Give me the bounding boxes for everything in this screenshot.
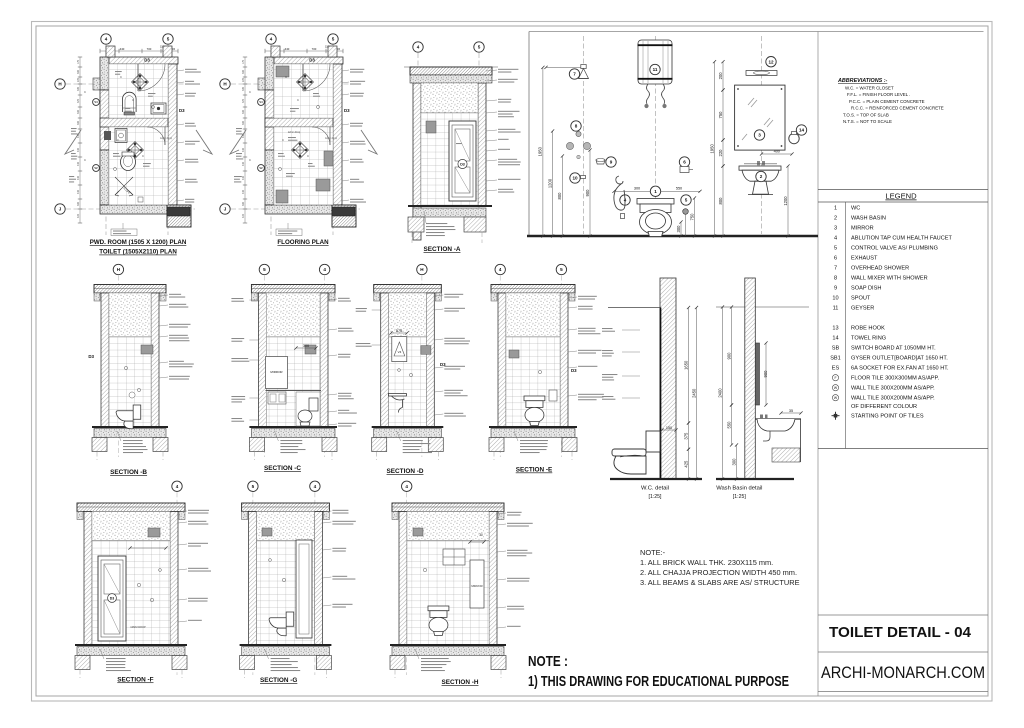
svg-text:C: C [84, 90, 86, 94]
svg-text:300: 300 [303, 344, 309, 348]
svg-text:NOTE:-: NOTE:- [640, 548, 666, 557]
svg-text:550: 550 [676, 187, 682, 191]
svg-text:12mm Drop: 12mm Drop [160, 137, 173, 140]
svg-text:420: 420 [242, 213, 245, 218]
svg-text:175: 175 [77, 59, 80, 64]
svg-text:300: 300 [242, 69, 245, 74]
svg-text:4: 4 [417, 45, 420, 50]
svg-text:300: 300 [77, 69, 80, 74]
svg-text:300: 300 [676, 225, 681, 233]
svg-text:35: 35 [789, 409, 793, 413]
svg-text:430: 430 [77, 175, 80, 180]
svg-text:4: 4 [405, 484, 408, 489]
svg-text:5: 5 [252, 484, 255, 489]
svg-text:9: 9 [610, 160, 613, 165]
svg-text:WC: WC [851, 206, 860, 212]
svg-text:9: 9 [834, 286, 837, 292]
svg-text:440: 440 [120, 47, 125, 51]
svg-text:SWITCH BOARD AT 1050MM HT.: SWITCH BOARD AT 1050MM HT. [851, 346, 936, 352]
svg-text:D3: D3 [440, 362, 446, 367]
svg-text:175: 175 [242, 59, 245, 64]
svg-text:T.O.S. = TOP OF SLAB: T.O.S. = TOP OF SLAB [843, 112, 889, 117]
svg-text:SOAP DISH: SOAP DISH [851, 286, 881, 292]
svg-text:7: 7 [834, 266, 837, 272]
svg-text:5: 5 [478, 45, 481, 50]
svg-text:1: 1 [654, 189, 657, 194]
svg-text:P.C.C. = PLAIN CEMENT CONCRE: P.C.C. = PLAIN CEMENT CONCRETE [849, 99, 925, 104]
svg-text:OF DIFFERENT COLOUR: OF DIFFERENT COLOUR [851, 404, 917, 410]
svg-text:225: 225 [77, 77, 80, 82]
svg-text:1. ALL BRICK WALL THK. 230X115: 1. ALL BRICK WALL THK. 230X115 mm. [640, 558, 773, 567]
svg-text:F: F [834, 376, 836, 380]
svg-text:N.T.S. = NOT TO SCALE: N.T.S. = NOT TO SCALE [843, 119, 892, 124]
svg-text:SECTION -H: SECTION -H [442, 679, 479, 686]
svg-text:D3: D3 [571, 368, 577, 373]
svg-text:SECTION -A: SECTION -A [424, 246, 461, 253]
svg-text:13: 13 [832, 326, 838, 332]
svg-text:900: 900 [726, 352, 731, 360]
svg-text:4: 4 [314, 484, 317, 489]
svg-text:C: C [84, 158, 86, 162]
svg-text:CONTROL VALVE AS/ PLUMBING: CONTROL VALVE AS/ PLUMBING [851, 246, 938, 252]
svg-text:5: 5 [834, 246, 837, 252]
svg-text:C: C [285, 75, 287, 79]
svg-text:420: 420 [77, 213, 80, 218]
svg-text:V2: V2 [94, 166, 98, 170]
svg-text:220: 220 [718, 149, 723, 157]
svg-text:700: 700 [147, 47, 152, 51]
svg-text:TOILET DETAIL - 04: TOILET DETAIL - 04 [829, 624, 972, 641]
svg-text:V4: V4 [94, 100, 98, 104]
svg-text:2400: 2400 [717, 388, 722, 398]
svg-text:800: 800 [718, 197, 723, 205]
svg-text:4: 4 [499, 267, 502, 272]
svg-text:C: C [282, 138, 284, 142]
svg-text:SECTION -F: SECTION -F [117, 676, 153, 683]
svg-text:300: 300 [77, 201, 80, 206]
svg-text:225: 225 [242, 77, 245, 82]
svg-text:ABLUTION TAP CUM HEALTH FAUCET: ABLUTION TAP CUM HEALTH FAUCET [851, 236, 952, 242]
svg-text:900: 900 [763, 370, 768, 378]
svg-text:900: 900 [585, 189, 590, 197]
svg-text:5: 5 [332, 37, 335, 42]
svg-text:330: 330 [242, 109, 245, 114]
svg-text:430: 430 [77, 189, 80, 194]
svg-text:10: 10 [832, 296, 838, 302]
svg-text:4: 4 [176, 484, 179, 489]
svg-text:11: 11 [833, 306, 839, 312]
svg-text:1: 1 [834, 206, 837, 212]
svg-text:12: 12 [768, 59, 774, 64]
svg-text:V4: V4 [398, 350, 402, 354]
svg-text:5: 5 [560, 267, 563, 272]
svg-text:FLOOR TILE 300X300MM AS/APP.: FLOOR TILE 300X300MM AS/APP. [851, 376, 940, 382]
svg-text:FLOORING PLAN: FLOORING PLAN [277, 239, 329, 246]
svg-text:6A SOCKET FOR EX.FAN AT 1650 H: 6A SOCKET FOR EX.FAN AT 1650 HT. [851, 366, 949, 372]
svg-text:SPOUT: SPOUT [851, 296, 871, 302]
svg-text:SB1: SB1 [830, 356, 841, 362]
svg-text:MIRROR: MIRROR [270, 370, 283, 374]
svg-text:NOTE :: NOTE : [528, 653, 568, 670]
svg-text:C: C [249, 158, 251, 162]
svg-text:8: 8 [575, 124, 578, 129]
svg-text:14: 14 [799, 128, 805, 133]
svg-text:4: 4 [105, 37, 108, 42]
svg-text:J: J [59, 207, 62, 212]
svg-text:200: 200 [718, 72, 723, 80]
svg-text:D3: D3 [344, 108, 350, 113]
svg-text:C: C [142, 154, 144, 158]
svg-text:6: 6 [683, 160, 686, 165]
svg-text:11: 11 [653, 67, 658, 72]
svg-text:2. ALL CHAJJA PROJECTION WIDTH: 2. ALL CHAJJA PROJECTION WIDTH 450 mm. [640, 568, 797, 577]
svg-text:OVERHEAD SHOWER: OVERHEAD SHOWER [851, 266, 909, 272]
svg-text:ABBREVIATIONS :-: ABBREVIATIONS :- [837, 78, 888, 84]
svg-text:12mm Drop: 12mm Drop [288, 131, 301, 134]
svg-text:1950: 1950 [538, 146, 543, 156]
svg-text:10MM DROP: 10MM DROP [130, 625, 146, 629]
svg-text:400: 400 [774, 150, 780, 154]
svg-text:GYSER OUTLET[BOARD]AT 1650 HT.: GYSER OUTLET[BOARD]AT 1650 HT. [851, 356, 948, 362]
svg-text:750: 750 [689, 213, 694, 221]
svg-text:SB: SB [832, 346, 840, 352]
svg-text:D3: D3 [179, 108, 185, 113]
svg-text:300: 300 [77, 120, 80, 125]
svg-text:1) THIS DRAWING FOR EDUCATIONA: 1) THIS DRAWING FOR EDUCATIONAL PURPOSE [528, 674, 789, 690]
svg-text:575: 575 [396, 329, 402, 333]
svg-text:SECTION -B: SECTION -B [110, 469, 147, 476]
svg-text:1950: 1950 [709, 144, 714, 154]
svg-text:J: J [224, 207, 227, 212]
svg-text:2450: 2450 [691, 388, 696, 398]
svg-text:3: 3 [834, 226, 837, 232]
svg-text:300: 300 [242, 120, 245, 125]
svg-text:R.C.C. = REINFORCED CEMENT C: R.C.C. = REINFORCED CEMENT CONCRETE [851, 106, 944, 111]
svg-text:D3: D3 [110, 597, 115, 601]
svg-text:430: 430 [242, 189, 245, 194]
svg-text:C: C [117, 138, 119, 142]
svg-text:8: 8 [834, 276, 837, 282]
svg-text:375: 375 [683, 432, 688, 440]
svg-text:440: 440 [285, 47, 290, 51]
svg-text:D3: D3 [309, 58, 315, 63]
svg-text:430: 430 [242, 175, 245, 180]
svg-text:LEGEND: LEGEND [885, 192, 917, 201]
svg-text:2: 2 [760, 174, 763, 179]
svg-text:W.C. detail: W.C. detail [641, 486, 669, 492]
svg-text:4: 4 [270, 37, 273, 42]
svg-text:430: 430 [242, 161, 245, 166]
svg-text:335: 335 [242, 86, 245, 91]
svg-text:5: 5 [263, 267, 266, 272]
svg-text:300: 300 [242, 201, 245, 206]
svg-text:370: 370 [77, 98, 80, 103]
svg-text:14: 14 [832, 336, 838, 342]
svg-text:C: C [132, 98, 134, 102]
svg-text:3. ALL BEAMS & SLABS ARE AS/ S: 3. ALL BEAMS & SLABS ARE AS/ STRUCTURE [640, 578, 800, 587]
svg-text:1200: 1200 [783, 196, 788, 206]
svg-text:4: 4 [323, 267, 326, 272]
svg-text:430: 430 [242, 147, 245, 152]
svg-text:C: C [307, 154, 309, 158]
svg-text:150: 150 [666, 426, 672, 430]
svg-text:STARTING POINT OF TILES: STARTING POINT OF TILES [851, 414, 924, 420]
svg-text:V2: V2 [259, 166, 263, 170]
svg-text:4: 4 [834, 236, 837, 242]
svg-text:SECTION -C: SECTION -C [264, 465, 301, 472]
svg-text:5: 5 [167, 37, 170, 42]
svg-text:[1:25]: [1:25] [649, 494, 663, 500]
svg-text:EXHAUST: EXHAUST [851, 256, 878, 262]
svg-text:425: 425 [683, 460, 688, 468]
svg-text:10: 10 [572, 176, 578, 181]
svg-text:TOILET (1505X2110) PLAN: TOILET (1505X2110) PLAN [99, 249, 177, 256]
svg-text:MIRROR: MIRROR [851, 226, 874, 232]
svg-text:Wash Basin detail: Wash Basin detail [716, 486, 762, 492]
svg-text:335: 335 [77, 86, 80, 91]
svg-text:WALL TILE 300X200MM AS/APP.: WALL TILE 300X200MM AS/APP. [851, 386, 935, 392]
svg-text:PWD. ROOM (1505 X 1200) PLAN: PWD. ROOM (1505 X 1200) PLAN [90, 239, 187, 246]
svg-text:1200: 1200 [547, 178, 552, 188]
svg-text:ARCHI-MONARCH.COM: ARCHI-MONARCH.COM [821, 663, 985, 682]
svg-text:D3: D3 [88, 354, 94, 359]
svg-text:D3: D3 [144, 58, 150, 63]
svg-text:D3: D3 [460, 163, 465, 167]
svg-text:GEYSER: GEYSER [851, 306, 874, 312]
svg-text:WASH BASIN: WASH BASIN [851, 216, 886, 222]
svg-text:[1:25]: [1:25] [733, 494, 747, 500]
svg-text:C: C [120, 75, 122, 79]
svg-text:430: 430 [77, 161, 80, 166]
svg-text:6: 6 [834, 256, 837, 262]
svg-text:ES: ES [832, 366, 840, 372]
svg-text:3: 3 [758, 133, 761, 138]
svg-text:300: 300 [634, 187, 640, 191]
svg-text:700: 700 [312, 47, 317, 51]
svg-text:MIRROR: MIRROR [471, 584, 482, 588]
svg-text:750: 750 [718, 111, 723, 119]
svg-text:SECTION -D: SECTION -D [387, 468, 424, 475]
svg-text:SECTION -E: SECTION -E [516, 467, 553, 474]
svg-text:1650: 1650 [683, 360, 688, 370]
svg-text:WALL MIXER WITH SHOWER: WALL MIXER WITH SHOWER [851, 276, 928, 282]
svg-text:370: 370 [242, 98, 245, 103]
svg-text:C: C [249, 90, 251, 94]
svg-text:SECTION -G: SECTION -G [260, 677, 297, 684]
svg-text:W.C. = WATER CLOSET: W.C. = WATER CLOSET [845, 86, 894, 91]
svg-text:TOWEL RING: TOWEL RING [851, 336, 886, 342]
svg-text:30: 30 [479, 533, 483, 537]
svg-text:330: 330 [77, 109, 80, 114]
svg-text:300: 300 [731, 458, 736, 466]
svg-text:C: C [297, 98, 299, 102]
svg-text:WALL TILE 300X200MM AS/APP.: WALL TILE 300X200MM AS/APP. [851, 396, 935, 402]
svg-text:800: 800 [557, 192, 562, 200]
svg-text:550: 550 [726, 421, 731, 429]
svg-text:ROBE HOOK: ROBE HOOK [851, 326, 885, 332]
svg-text:430: 430 [77, 147, 80, 152]
svg-text:12mm Drop: 12mm Drop [325, 137, 338, 140]
svg-text:2: 2 [834, 216, 837, 222]
svg-text:5: 5 [685, 198, 688, 203]
svg-text:F.F.L. = FINISH FLOOR LEVEL: F.F.L. = FINISH FLOOR LEVEL . [847, 92, 910, 97]
svg-text:7: 7 [573, 72, 576, 77]
svg-text:V4: V4 [259, 100, 263, 104]
